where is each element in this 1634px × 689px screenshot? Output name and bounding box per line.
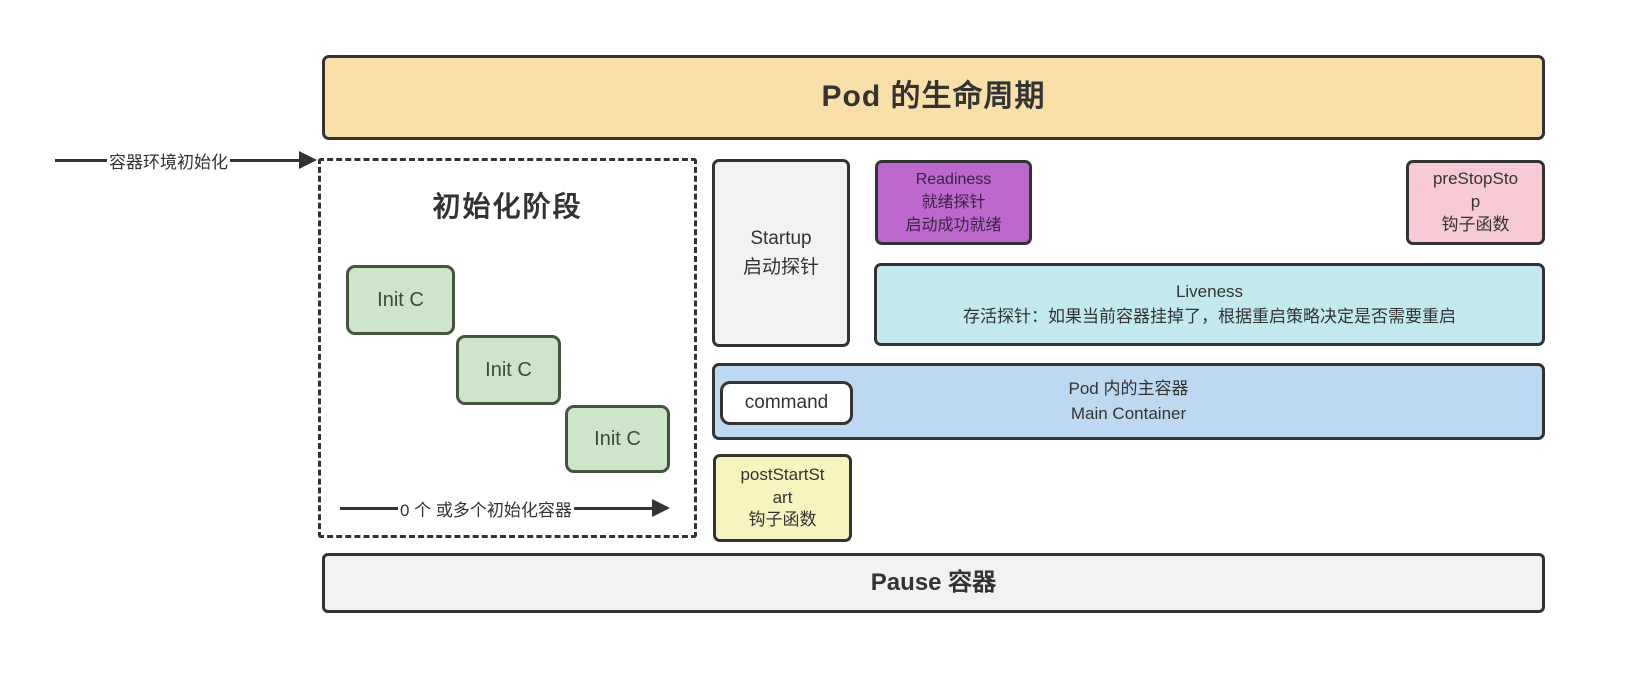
init-containers-arrow: 0 个 或多个初始化容器 [340, 494, 670, 522]
init-containers-arrow-label: 0 个 或多个初始化容器 [398, 496, 574, 521]
startup-line: Startup [750, 224, 811, 253]
liveness-line: 存活探针：如果当前容器挂掉了，根据重启策略决定是否需要重启 [963, 305, 1456, 329]
command-box: command [720, 381, 853, 425]
arrow-line [340, 507, 398, 510]
init-container-box: Init C [346, 265, 455, 335]
readiness-line: 就绪探针 [921, 191, 985, 214]
arrowhead-right-icon [299, 151, 317, 169]
poststart-line: art [773, 487, 793, 510]
readiness-line: Readiness [916, 168, 992, 191]
init-container-box: Init C [456, 335, 561, 405]
arrowhead-right-icon [652, 499, 670, 517]
init-phase-box: 初始化阶段 Init C Init C Init C 0 个 或多个初始化容器 [318, 158, 697, 538]
arrow-line [230, 159, 299, 162]
init-phase-title: 初始化阶段 [321, 185, 694, 225]
pause-container-bar: Pause 容器 [322, 553, 1545, 613]
init-container-box: Init C [565, 405, 670, 473]
liveness-probe-box: Liveness 存活探针：如果当前容器挂掉了，根据重启策略决定是否需要重启 [874, 263, 1545, 346]
pod-lifecycle-diagram: Pod 的生命周期 容器环境初始化 初始化阶段 Init C Init C In… [0, 0, 1634, 689]
env-init-arrow-label: 容器环境初始化 [107, 148, 230, 173]
prestop-line: 钩子函数 [1442, 214, 1510, 237]
env-init-arrow: 容器环境初始化 [55, 146, 317, 174]
liveness-line: Liveness [1176, 280, 1243, 304]
prestop-hook-box: preStopSto p 钩子函数 [1406, 160, 1545, 245]
poststart-hook-box: postStartSt art 钩子函数 [713, 454, 852, 542]
arrow-line [55, 159, 107, 162]
diagram-title: Pod 的生命周期 [322, 55, 1545, 140]
main-container-line: Pod 内的主容器 [1069, 377, 1189, 401]
poststart-line: postStartSt [740, 464, 824, 487]
startup-line: 启动探针 [743, 253, 819, 282]
prestop-line: preStopSto [1433, 168, 1518, 191]
prestop-line: p [1471, 191, 1480, 214]
main-container-line: Main Container [1071, 402, 1186, 426]
arrow-line [574, 507, 652, 510]
readiness-line: 启动成功就绪 [905, 214, 1001, 237]
poststart-line: 钩子函数 [749, 509, 817, 532]
readiness-probe-box: Readiness 就绪探针 启动成功就绪 [875, 160, 1032, 245]
main-container-box: Pod 内的主容器 Main Container command [712, 363, 1545, 440]
startup-probe-box: Startup 启动探针 [712, 159, 850, 347]
